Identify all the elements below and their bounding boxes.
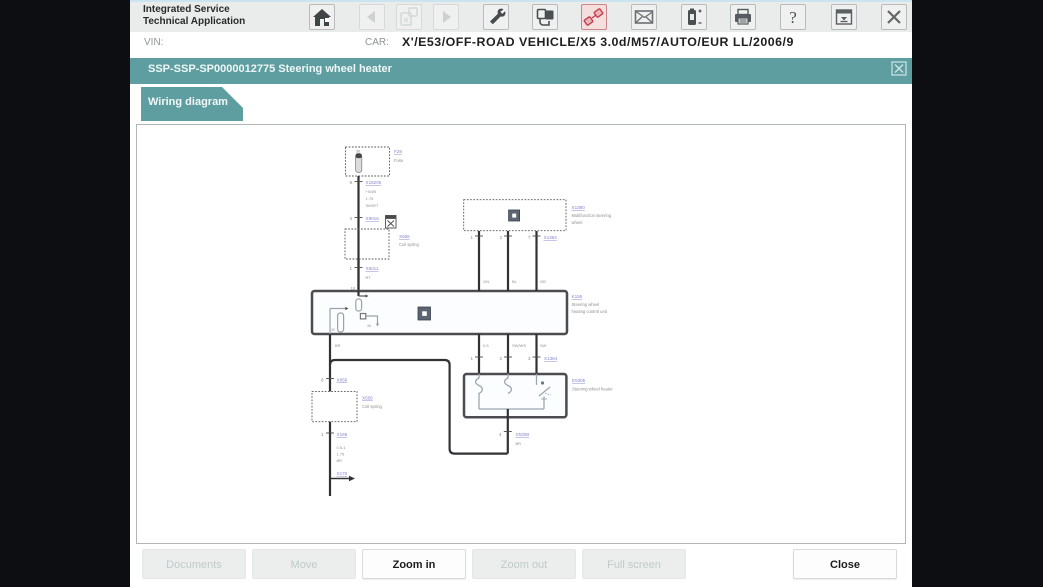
svg-text:Steering wheel: Steering wheel xyxy=(572,302,600,307)
svg-text:Multifunction steering: Multifunction steering xyxy=(572,213,612,218)
svg-text:30: 30 xyxy=(356,150,360,154)
svg-text:X18205: X18205 xyxy=(366,180,382,185)
svg-text:1: 1 xyxy=(471,356,474,361)
svg-text:1.75: 1.75 xyxy=(366,196,375,201)
svg-text:GN: GN xyxy=(483,279,489,284)
svg-text:0.5: 0.5 xyxy=(483,343,489,348)
svg-text:SW/WS: SW/WS xyxy=(512,343,526,348)
svg-text:0.5-1: 0.5-1 xyxy=(337,445,347,450)
svg-text:1: 1 xyxy=(350,266,353,271)
svg-text:E530b: E530b xyxy=(572,378,586,383)
svg-text:10: 10 xyxy=(351,287,355,291)
svg-text:7: 7 xyxy=(528,235,531,240)
svg-text:RT: RT xyxy=(366,275,372,280)
svg-text:Coil spring: Coil spring xyxy=(362,404,382,409)
svg-text:K155: K155 xyxy=(572,294,583,299)
svg-text:X556: X556 xyxy=(362,396,373,401)
svg-text:SW: SW xyxy=(540,343,547,348)
svg-text:BR: BR xyxy=(516,441,522,446)
svg-text:9: 9 xyxy=(350,180,353,185)
svg-text:wheel: wheel xyxy=(572,220,583,225)
svg-text:X1380: X1380 xyxy=(572,205,586,210)
svg-text:3: 3 xyxy=(528,356,531,361)
svg-text:4: 4 xyxy=(499,432,502,437)
svg-text:Coil spring: Coil spring xyxy=(399,242,419,247)
svg-text:36: 36 xyxy=(367,324,371,328)
svg-text:?: ? xyxy=(789,8,797,27)
svg-text:X530B: X530B xyxy=(516,432,530,437)
svg-text:X655: X655 xyxy=(399,234,410,239)
svg-text:Steering wheel heater: Steering wheel heater xyxy=(572,387,613,392)
svg-text:30: 30 xyxy=(331,328,335,332)
svg-text:1: 1 xyxy=(471,235,474,240)
svg-text:2: 2 xyxy=(500,356,503,361)
svg-text:1.75: 1.75 xyxy=(337,452,346,457)
svg-text:Fuse: Fuse xyxy=(394,158,404,163)
svg-text:X170: X170 xyxy=(337,471,348,476)
svg-text:heating control unit: heating control unit xyxy=(572,309,608,314)
svg-text:BL: BL xyxy=(512,279,518,284)
svg-text:X169: X169 xyxy=(337,432,348,437)
svg-text:BR: BR xyxy=(337,458,343,463)
svg-text:6: 6 xyxy=(321,378,324,383)
svg-text:X9016: X9016 xyxy=(366,216,380,221)
svg-text:X6011: X6011 xyxy=(366,266,379,271)
svg-text:BR: BR xyxy=(335,343,341,348)
svg-text:+0/4B: +0/4B xyxy=(366,189,377,194)
svg-text:F28: F28 xyxy=(394,149,402,154)
svg-text:4: 4 xyxy=(350,216,353,221)
svg-text:GB: GB xyxy=(540,279,546,284)
svg-text:X656: X656 xyxy=(337,378,348,383)
svg-text:X1384: X1384 xyxy=(544,235,558,240)
svg-text:2: 2 xyxy=(500,235,503,240)
svg-text:1: 1 xyxy=(321,432,324,437)
svg-text:X1384: X1384 xyxy=(544,356,558,361)
svg-text:SW/RT: SW/RT xyxy=(366,203,379,208)
